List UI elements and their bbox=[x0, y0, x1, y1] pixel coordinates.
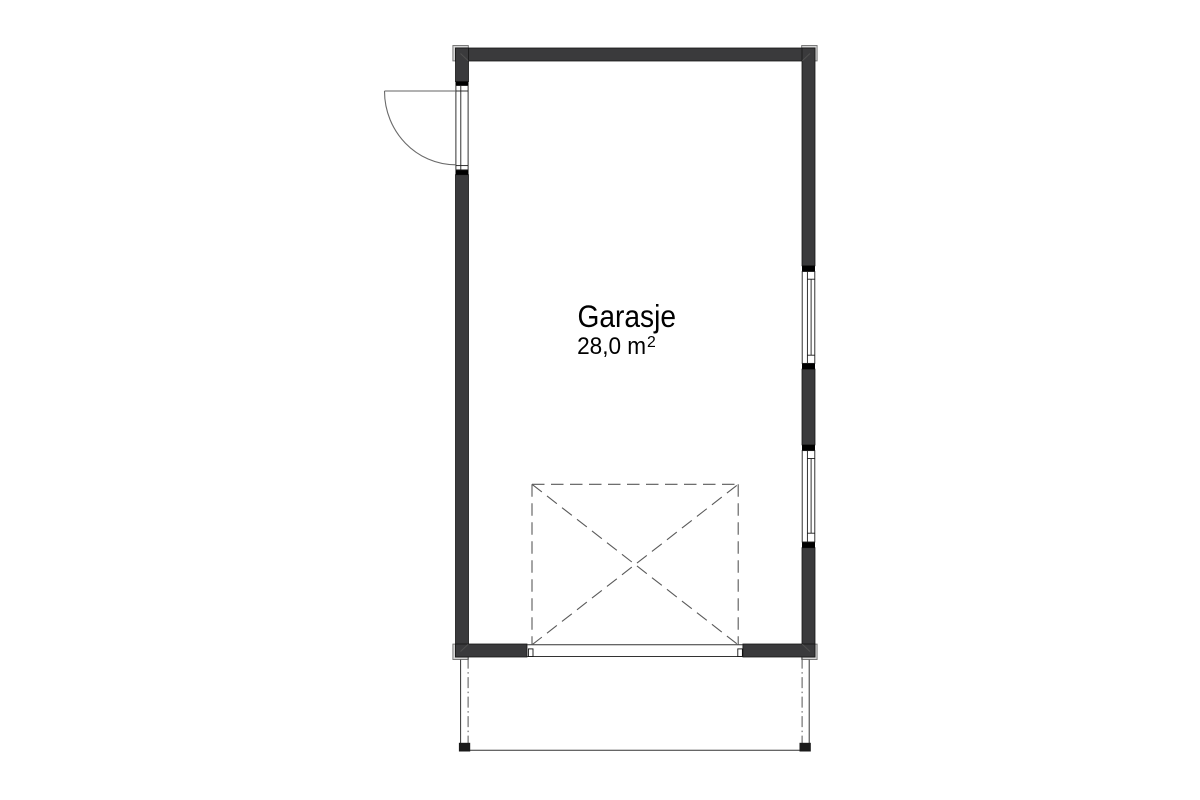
svg-text:Garasje: Garasje bbox=[578, 298, 677, 334]
svg-text:2: 2 bbox=[647, 334, 656, 351]
svg-text:28,0 m: 28,0 m bbox=[577, 333, 646, 360]
